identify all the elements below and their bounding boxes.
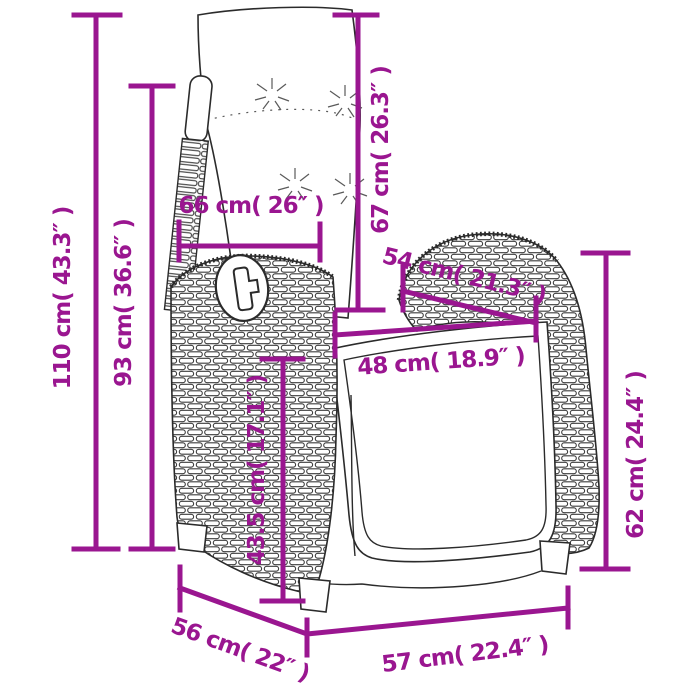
dim-armrest-height-label: 62 cm( 24.4″ ): [623, 371, 649, 539]
dim-back-cushion-width-label: 66 cm( 26″ ): [179, 193, 324, 219]
dim-base-width-label: 57 cm( 22.4″ ): [380, 632, 550, 678]
chair-leg-right: [540, 541, 570, 574]
dim-total-height: 110 cm( 43.3″ ): [50, 15, 120, 549]
dim-backrest-height: 93 cm( 36.6″ ): [111, 86, 173, 549]
dim-seat-height-label: 43.5 cm( 17.1″ ): [244, 375, 270, 565]
dim-back-cushion-height-label: 67 cm( 26.3″ ): [368, 66, 394, 234]
dim-base-depth-label: 56 cm( 22″ ): [167, 613, 312, 687]
chair-leg-front: [299, 578, 330, 612]
dim-total-height-label: 110 cm( 43.3″ ): [50, 207, 76, 390]
dimension-diagram: 110 cm( 43.3″ ) 93 cm( 36.6″ ) 66 cm( 26…: [0, 0, 700, 700]
dim-base-width: 57 cm( 22.4″ ): [307, 588, 568, 678]
chair-dimension-drawing: 110 cm( 43.3″ ) 93 cm( 36.6″ ) 66 cm( 26…: [0, 0, 700, 700]
chair-leg-left: [177, 523, 207, 552]
dim-backrest-height-label: 93 cm( 36.6″ ): [111, 219, 137, 387]
